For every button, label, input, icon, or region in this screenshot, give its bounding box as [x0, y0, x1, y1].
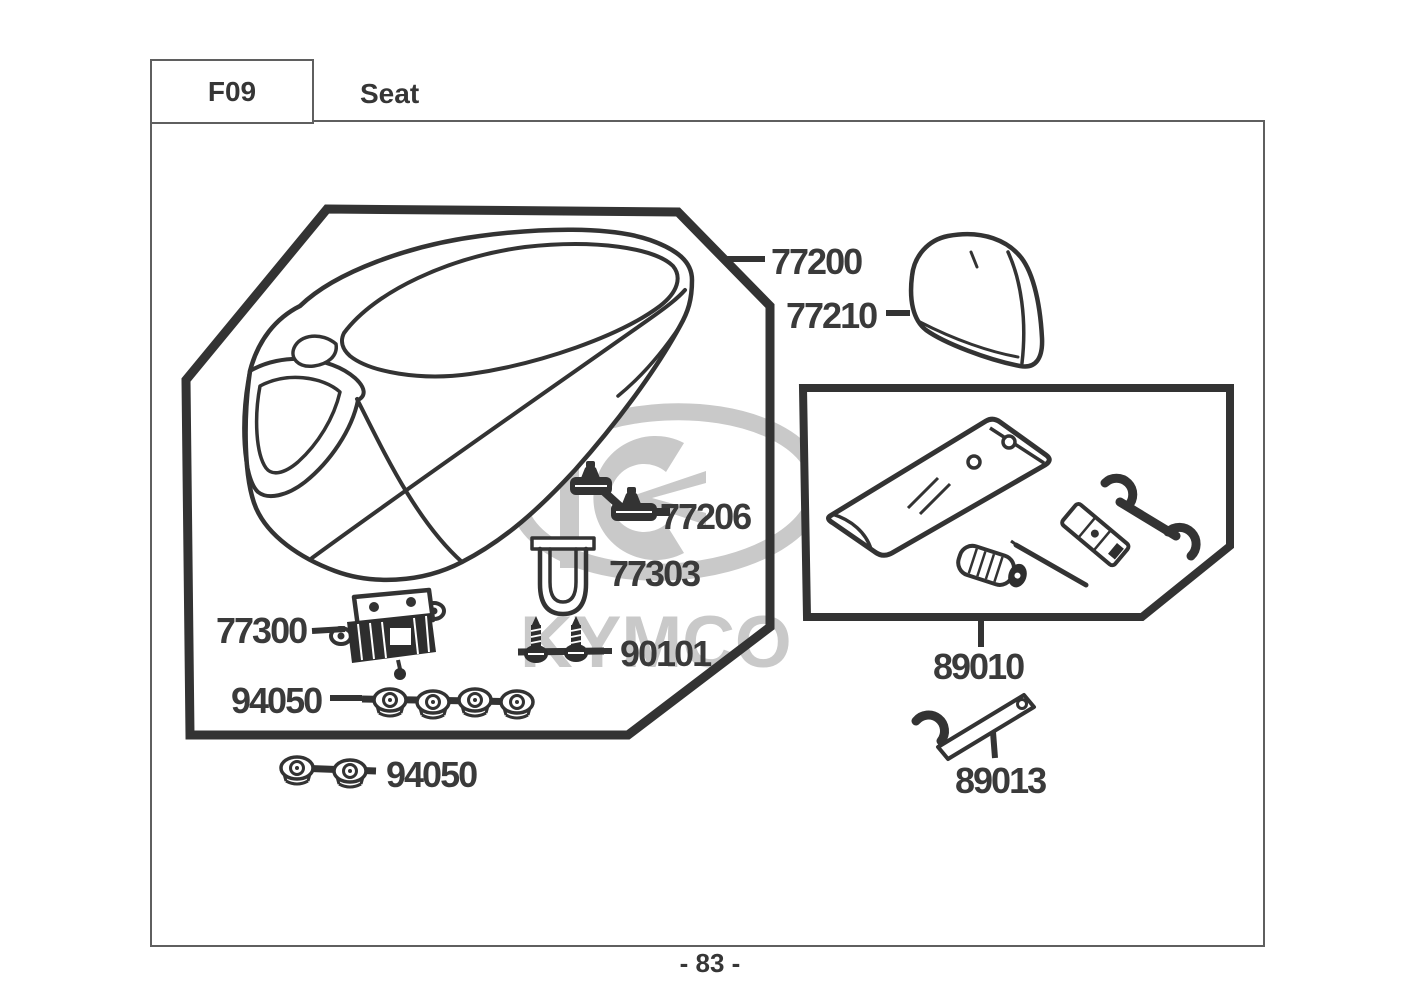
part-label-89013: 89013 [955, 763, 1045, 799]
part-label-90101: 90101 [620, 636, 710, 672]
part-label-77200: 77200 [771, 244, 861, 280]
part-label-77210: 77210 [786, 298, 876, 334]
catalog-page: F09 Seat - 83 - KYMCO [0, 0, 1415, 1000]
part-label-77300: 77300 [216, 613, 306, 649]
part-label-77206: 77206 [660, 499, 750, 535]
flange-nuts-pair-illustration [281, 757, 376, 787]
part-label-94050-row: 94050 [231, 683, 321, 719]
seat-lock-illustration [331, 590, 444, 680]
part-label-89010: 89010 [933, 649, 1023, 685]
part-label-77303: 77303 [609, 556, 699, 592]
part-label-94050-pair: 94050 [386, 757, 476, 793]
tool-kit-illustration [803, 388, 1230, 617]
flange-nuts-row-illustration [362, 689, 533, 718]
backrest-pad-illustration [911, 234, 1042, 366]
hook-spanner-illustration [916, 695, 1034, 759]
seat-band-illustration [532, 538, 594, 614]
